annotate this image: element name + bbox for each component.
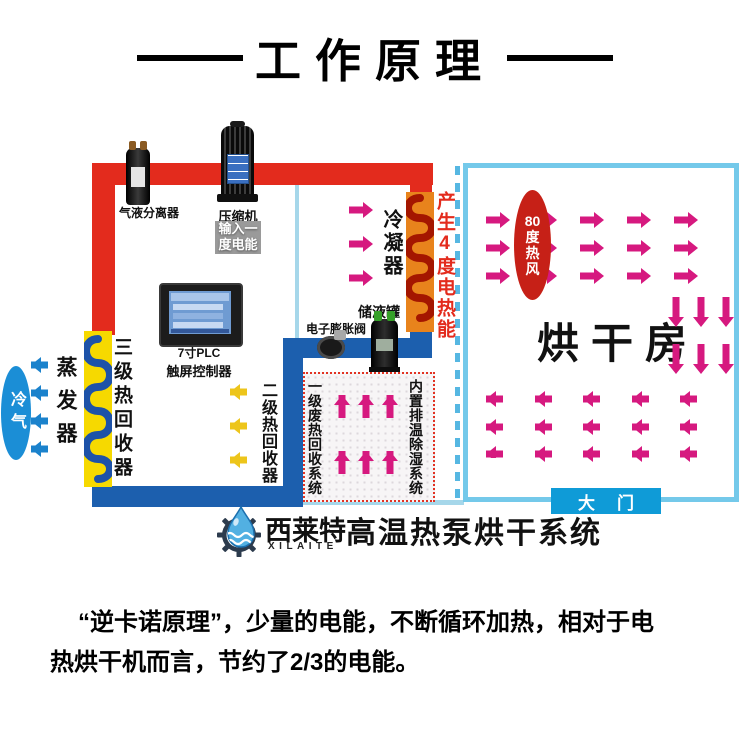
arrow-right-icon: [486, 240, 510, 256]
plc-screen-header: [171, 293, 229, 301]
arrow-down-icon: [668, 344, 684, 374]
arrow-right-icon: [580, 240, 604, 256]
arrow-left-icon: [230, 452, 254, 468]
arrow-up-icon: [358, 451, 374, 481]
arrow-left-icon: [31, 385, 55, 401]
description-line1: “逆卡诺原理”，少量的电能，不断循环加热，相对于电: [78, 602, 654, 637]
arrow-right-icon: [486, 268, 510, 284]
hot-air-badge: 80度热风: [514, 190, 551, 300]
arrow-left-icon: [583, 419, 607, 435]
arrow-right-icon: [580, 212, 604, 228]
arrow-down-icon: [718, 344, 734, 374]
arrow-right-icon: [349, 236, 373, 252]
tank-base: [369, 367, 400, 372]
waste-heat-arrow-row: [334, 392, 398, 428]
arrow-right-icon: [349, 270, 373, 286]
arrow-left-icon: [535, 419, 559, 435]
return-air-arrow-row: [486, 418, 704, 436]
arrow-up-icon: [334, 451, 350, 481]
plc-label-line2: 触屏控制器: [147, 361, 251, 380]
arrow-left-icon: [535, 446, 559, 462]
tank-label-band: [376, 339, 393, 351]
page-title: 工作原理: [255, 25, 495, 91]
page: 工作原理 气液分离器: [0, 0, 750, 750]
arrow-left-icon: [471, 366, 501, 382]
recovery-coil-snake: [84, 331, 112, 487]
gas-liquid-separator: [126, 148, 150, 205]
badge-line: 热: [526, 245, 540, 261]
separator-label: 气液分离器: [110, 204, 188, 221]
door-label: 大门: [578, 489, 656, 514]
arrow-left-icon: [31, 413, 55, 429]
heat-recovery-3-label: 三级热回收器: [112, 337, 131, 481]
waste-heat-recovery-label: 一级废热回收系统: [308, 379, 322, 495]
arrow-left-icon: [486, 391, 510, 407]
heat-recovery-2-label: 二级热回收器: [259, 382, 275, 484]
separator-fitting: [129, 141, 136, 150]
condenser-coil: [406, 192, 434, 332]
arrow-down-icon: [693, 297, 709, 327]
arrow-left-icon: [632, 446, 656, 462]
arrow-left-icon: [230, 418, 254, 434]
arrow-down-icon: [668, 297, 684, 327]
arrow-left-icon: [680, 419, 704, 435]
arrow-right-icon: [627, 212, 651, 228]
arrow-left-icon: [583, 446, 607, 462]
arrow-right-icon: [674, 212, 698, 228]
arrow-left-icon: [31, 441, 55, 457]
title-dash-left: [137, 55, 243, 61]
plc-screen: [169, 291, 231, 334]
plc-screen-row: [173, 322, 223, 328]
compressor: [221, 126, 254, 200]
receiver-tank: [371, 319, 398, 371]
evaporator-label: 蒸发器: [55, 356, 76, 455]
arrow-left-icon: [680, 391, 704, 407]
page-title-row: 工作原理: [0, 26, 750, 90]
valve-cap: [334, 330, 346, 340]
arrow-left-icon: [535, 391, 559, 407]
condenser-coil-snake: [406, 192, 434, 332]
circulation-down-arrow-row: [668, 343, 734, 375]
arrow-right-icon: [627, 240, 651, 256]
arrow-down-icon: [718, 297, 734, 327]
arrow-left-icon: [583, 391, 607, 407]
waste-heat-arrow-row: [334, 448, 398, 484]
arrow-down-icon: [693, 344, 709, 374]
arrow-left-icon: [632, 391, 656, 407]
title-dash-right: [507, 55, 613, 61]
arrow-left-icon: [230, 384, 254, 400]
arrow-up-icon: [358, 395, 374, 425]
tank-fitting-green: [374, 311, 382, 321]
brand-name-en: XILAITE: [268, 541, 338, 552]
hot-pipe-left: [92, 163, 115, 335]
expansion-valve: [317, 336, 345, 359]
return-air-arrow-row: [486, 390, 704, 408]
arrow-right-icon: [627, 268, 651, 284]
input-energy-line2: 度电能: [215, 237, 261, 253]
product-name: 高温热泵烘干系统: [346, 508, 602, 552]
return-air-arrow-row: [486, 445, 704, 463]
tank-fitting-green: [387, 311, 395, 321]
dehumidifier-label: 内置排温除湿系统: [409, 379, 423, 495]
plc-screen-toolbar: [171, 329, 229, 333]
condenser-arrow-column: [348, 202, 374, 286]
circulation-down-arrow-row: [668, 296, 734, 328]
compressor-sticker: [227, 154, 249, 184]
arrow-up-icon: [382, 451, 398, 481]
description-line2: 热烘干机而言，节约了2/3的电能。: [50, 642, 419, 677]
badge-line: 度: [526, 229, 540, 245]
compressor-cap: [230, 121, 245, 127]
badge-line: 80: [525, 213, 541, 229]
plc-label: 7寸PLC 触屏控制器: [147, 344, 251, 380]
cold-pipe-horizontal: [283, 338, 432, 358]
evaporator-arrow-column: [29, 357, 57, 457]
arrow-up-icon: [482, 458, 502, 500]
arrow-left-icon: [31, 357, 55, 373]
condenser-label: 冷凝器: [381, 209, 401, 278]
cold-air-badge-text: 冷气: [8, 391, 24, 435]
compressor-base: [217, 194, 258, 202]
arrow-left-icon: [632, 419, 656, 435]
door-badge: 大门: [551, 488, 661, 514]
separator-fitting: [140, 141, 147, 150]
plc-screen-row: [173, 304, 223, 310]
heat-recovery-coil: [84, 331, 112, 487]
arrow-left-icon: [680, 446, 704, 462]
arrow-right-icon: [349, 202, 373, 218]
arrow-up-icon: [382, 395, 398, 425]
arrow-up-icon: [334, 395, 350, 425]
arrow-left-icon: [486, 419, 510, 435]
input-energy-line1: 输入一: [215, 221, 261, 237]
dashed-partition: [455, 166, 460, 498]
plc-controller: [159, 283, 243, 347]
cold-pipe-bottom: [92, 486, 303, 507]
recovery-2-arrow-column: [229, 384, 255, 468]
arrow-right-icon: [674, 240, 698, 256]
cold-pipe-left-vertical: [283, 338, 303, 499]
arrow-right-icon: [486, 212, 510, 228]
input-energy-badge: 输入一 度电能: [215, 221, 261, 254]
arrow-right-icon: [674, 268, 698, 284]
arrow-right-icon: [580, 268, 604, 284]
plc-screen-row: [173, 313, 223, 319]
cold-air-badge: 冷气: [1, 366, 31, 460]
brand-logo: [215, 504, 265, 562]
badge-line: 风: [526, 261, 540, 277]
heat-gain-label: 产生4度电热能: [435, 191, 454, 340]
separator-label-band: [131, 167, 145, 187]
